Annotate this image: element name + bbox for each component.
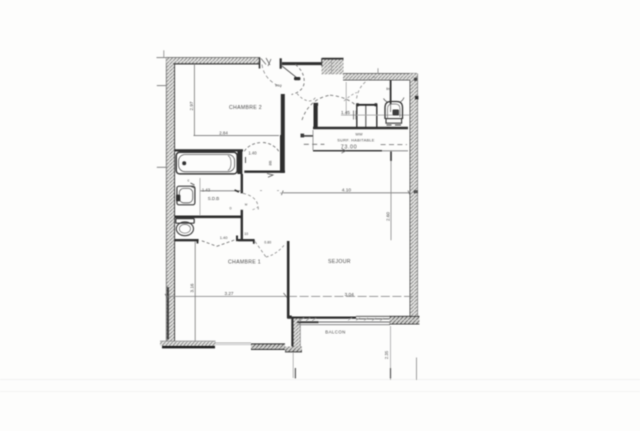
svg-text:10: 10 bbox=[244, 232, 248, 236]
svg-text:1.40: 1.40 bbox=[248, 150, 257, 155]
svg-text:c: c bbox=[188, 179, 190, 183]
svg-text:CHAMBRE 1: CHAMBRE 1 bbox=[228, 260, 261, 266]
svg-text:1.40: 1.40 bbox=[220, 235, 229, 240]
svg-text:2.97: 2.97 bbox=[189, 101, 194, 110]
svg-text:2.35: 2.35 bbox=[384, 350, 389, 359]
svg-text:4.10: 4.10 bbox=[342, 188, 352, 194]
svg-text:SURF. HABITABLE: SURF. HABITABLE bbox=[337, 138, 375, 143]
svg-text:3.04: 3.04 bbox=[345, 292, 355, 298]
svg-text:SEJOUR: SEJOUR bbox=[328, 259, 351, 265]
svg-text:73.00: 73.00 bbox=[341, 145, 358, 151]
svg-text:w: w bbox=[245, 203, 248, 207]
svg-text:0: 0 bbox=[229, 207, 231, 211]
svg-text:CHAMBRE 2: CHAMBRE 2 bbox=[229, 105, 262, 111]
svg-text:1.45: 1.45 bbox=[341, 110, 350, 115]
svg-text:0.80: 0.80 bbox=[264, 241, 271, 245]
svg-text:1.43: 1.43 bbox=[202, 187, 211, 192]
svg-text:3.27: 3.27 bbox=[225, 291, 234, 296]
svg-text:2.60: 2.60 bbox=[386, 212, 391, 221]
svg-text:8B: 8B bbox=[268, 160, 273, 165]
svg-text:3.16: 3.16 bbox=[190, 283, 195, 292]
svg-text:S.D.B: S.D.B bbox=[208, 196, 220, 201]
svg-text:2.84: 2.84 bbox=[219, 130, 228, 135]
svg-text:WW: WW bbox=[355, 133, 363, 137]
svg-text:lin: lin bbox=[386, 87, 390, 91]
svg-text:BALCON: BALCON bbox=[325, 329, 345, 334]
svg-text:eso: eso bbox=[275, 83, 282, 88]
